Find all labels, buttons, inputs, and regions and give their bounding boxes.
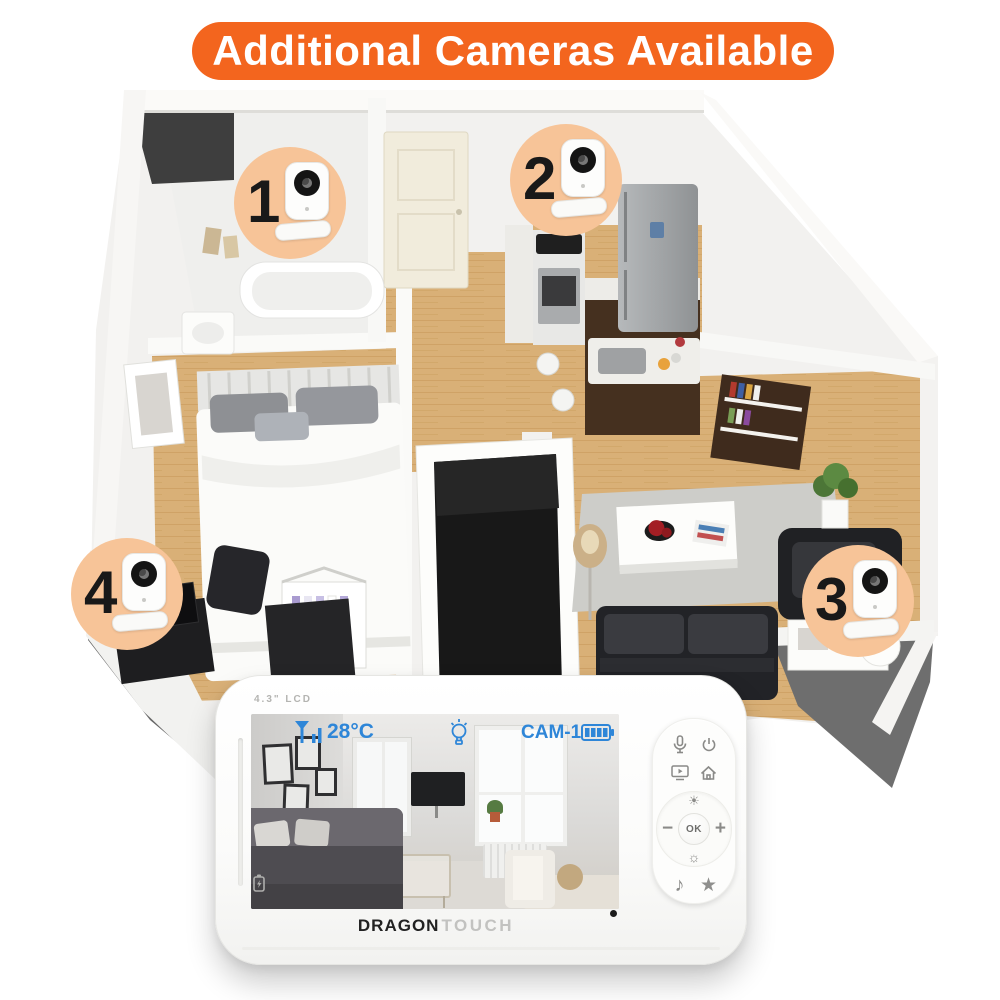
brand-logo: DRAGONTOUCH [316, 916, 556, 936]
screen-play-icon [671, 765, 689, 781]
microphone-button[interactable] [667, 733, 693, 757]
camera-number: 4 [84, 558, 117, 627]
star-button[interactable]: ★ [696, 873, 722, 897]
camera-icon [285, 162, 331, 239]
camera-number: 1 [247, 167, 280, 236]
bezel-groove [238, 738, 243, 886]
brightness-up-button[interactable]: ☀ [688, 793, 700, 809]
coffee-table [616, 501, 737, 574]
monitor-screen: 28°C CAM-1 [251, 714, 619, 909]
stairwell [416, 438, 580, 714]
office-chair [205, 544, 271, 617]
camera-icon [122, 553, 168, 630]
entry-door [384, 132, 468, 288]
device-seam [242, 947, 720, 950]
microphone-icon [672, 735, 688, 755]
bedroom-wall-art [124, 360, 184, 449]
minus-button[interactable]: − [662, 818, 673, 840]
camera-number: 3 [815, 565, 848, 634]
banner-text: Additional Cameras Available [212, 27, 813, 75]
signal-strength-icon [295, 721, 325, 745]
camera-marker-4: 4 [71, 538, 183, 650]
baby-monitor-device: 4.3" LCD [215, 675, 747, 965]
bathtub [240, 262, 384, 318]
bookshelf [710, 374, 811, 470]
camera-icon [561, 139, 607, 216]
fridge [618, 184, 698, 332]
ok-button[interactable]: OK [678, 813, 710, 845]
camera-marker-1: 1 [234, 147, 346, 259]
plus-button[interactable]: + [715, 818, 726, 840]
camera-number: 2 [523, 144, 556, 213]
home-button[interactable] [696, 761, 722, 785]
temperature-readout: 28°C [327, 720, 374, 744]
lullaby-button[interactable]: ♪ [667, 873, 693, 897]
screen-button[interactable] [667, 761, 693, 785]
on-screen-display: 28°C CAM-1 [251, 714, 619, 909]
power-icon [701, 737, 717, 753]
control-panel: ☀ − OK + ☼ ♪ ★ [652, 718, 736, 904]
camera-marker-2: 2 [510, 124, 622, 236]
battery-level-icon [581, 724, 614, 741]
light-bulb-icon [449, 718, 469, 746]
home-icon [700, 765, 717, 781]
banner: Additional Cameras Available [192, 22, 834, 80]
microphone-hole [610, 910, 617, 917]
brand-primary: DRAGON [358, 916, 440, 935]
dpad: ☀ − OK + ☼ [656, 791, 732, 867]
product-image: Additional Cameras Available [0, 0, 1000, 1000]
camera-icon [853, 560, 899, 637]
lcd-size-label: 4.3" LCD [254, 694, 312, 705]
brightness-down-button[interactable]: ☼ [688, 849, 701, 865]
camera-channel-label: CAM-1 [521, 722, 581, 744]
bed-foot-tv [265, 598, 355, 683]
power-button[interactable] [696, 733, 722, 757]
brand-secondary: TOUCH [441, 916, 514, 935]
camera-marker-3: 3 [802, 545, 914, 657]
